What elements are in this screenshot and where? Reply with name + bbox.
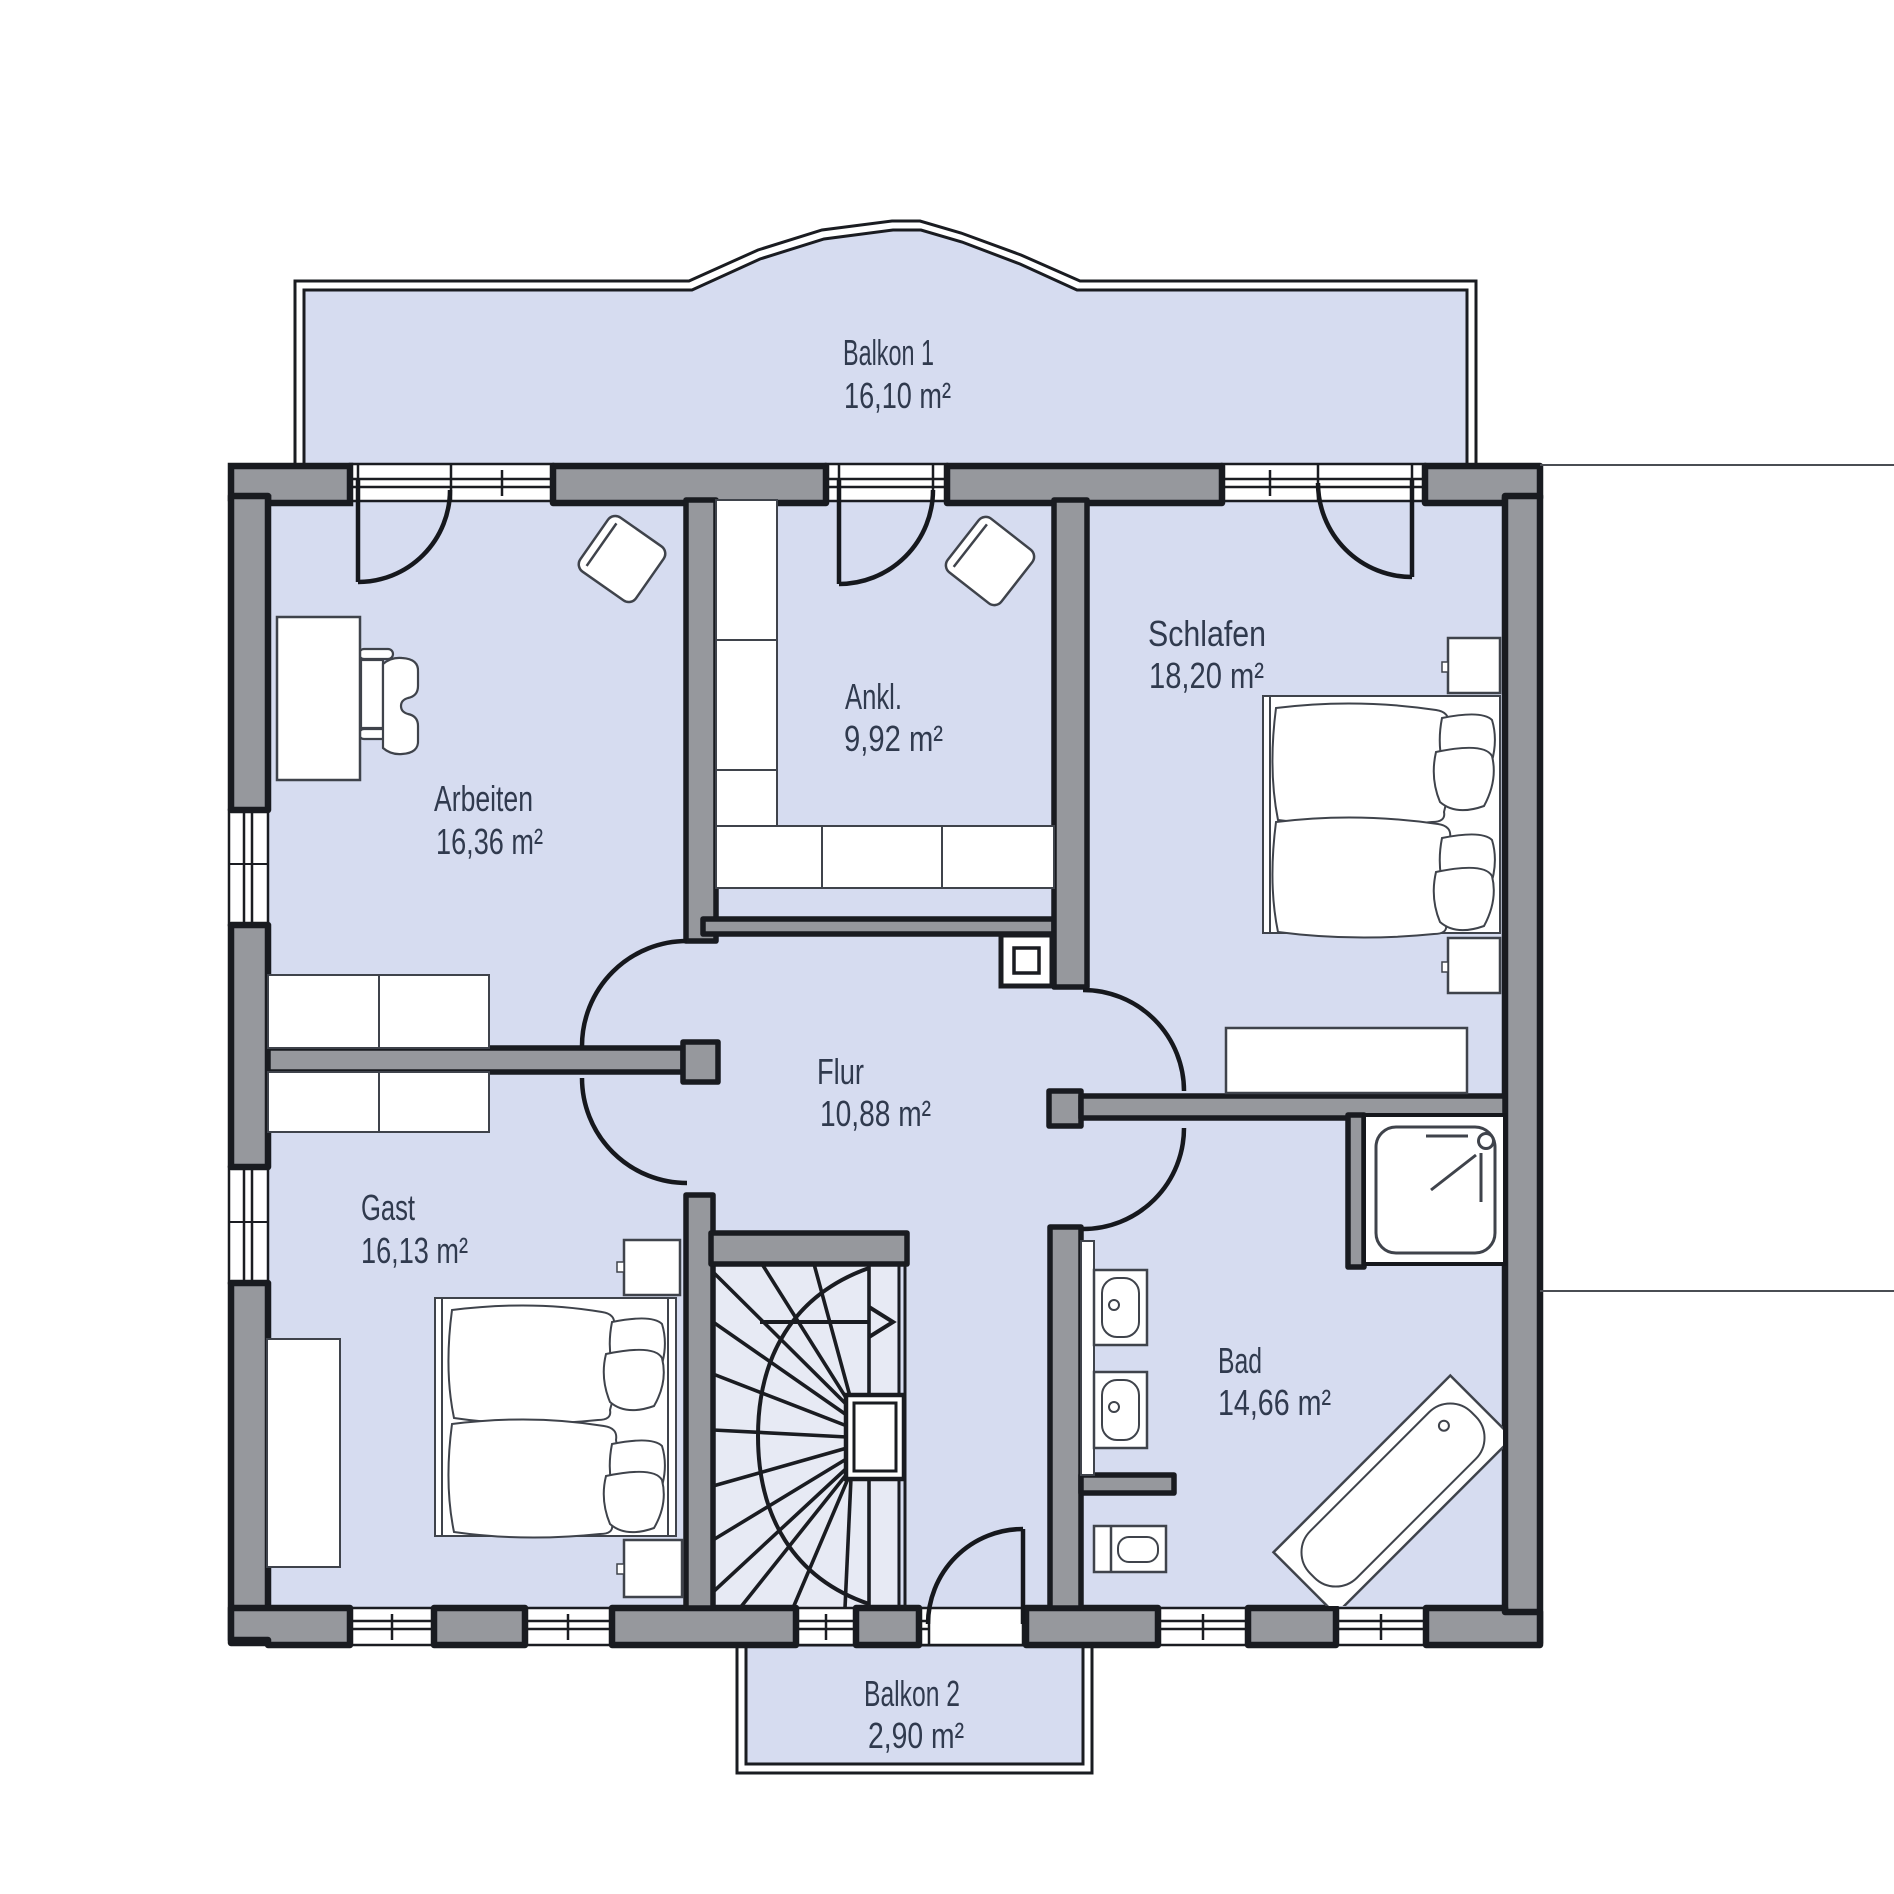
svg-text:9,92 m²: 9,92 m² bbox=[844, 718, 943, 759]
svg-text:18,20 m²: 18,20 m² bbox=[1149, 655, 1264, 696]
svg-text:10,88 m²: 10,88 m² bbox=[820, 1093, 931, 1134]
svg-text:Bad: Bad bbox=[1218, 1340, 1262, 1381]
svg-text:14,66 m²: 14,66 m² bbox=[1218, 1382, 1331, 1423]
svg-text:16,10 m²: 16,10 m² bbox=[844, 375, 951, 416]
svg-text:16,36 m²: 16,36 m² bbox=[436, 821, 543, 862]
svg-text:2,90 m²: 2,90 m² bbox=[868, 1715, 964, 1756]
svg-text:Balkon 2: Balkon 2 bbox=[864, 1673, 960, 1714]
svg-text:16,13 m²: 16,13 m² bbox=[361, 1230, 468, 1271]
svg-text:Balkon 1: Balkon 1 bbox=[843, 332, 934, 373]
svg-text:Gast: Gast bbox=[361, 1187, 415, 1228]
svg-text:Schlafen: Schlafen bbox=[1148, 613, 1266, 654]
svg-text:Ankl.: Ankl. bbox=[845, 676, 902, 717]
svg-text:Flur: Flur bbox=[817, 1051, 864, 1092]
svg-text:Arbeiten: Arbeiten bbox=[434, 778, 533, 819]
